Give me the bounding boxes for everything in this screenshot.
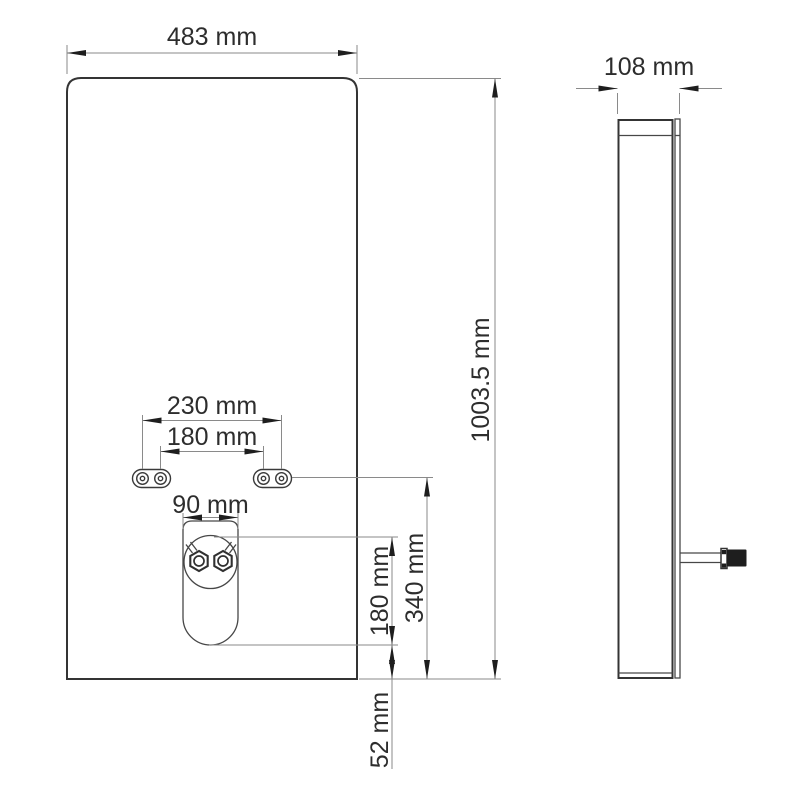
pipe-nut — [727, 550, 747, 567]
side-body-outline — [619, 120, 673, 678]
dim-holes-inner-label: 180 mm — [167, 423, 257, 451]
mounting-hole — [137, 473, 149, 485]
front-view — [67, 78, 357, 679]
dim-front-width-label: 483 mm — [167, 23, 257, 51]
dim-front-height-label: 1003.5 mm — [467, 317, 495, 442]
dim-holes-to-bottom: 340 mm — [292, 478, 433, 680]
side-view — [619, 119, 747, 678]
technical-drawing-canvas: 483 mm 1003.5 mm 108 mm 230 mm 180 mm — [0, 0, 800, 800]
slot-outline — [254, 470, 292, 488]
dim-holes-to-bottom-label: 340 mm — [401, 533, 429, 623]
mounting-hole-center — [140, 476, 144, 480]
extension-lines — [618, 93, 680, 114]
dim-side-depth-label: 108 mm — [604, 53, 694, 81]
pipe-lines — [680, 553, 721, 563]
back-plate — [675, 119, 680, 678]
mounting-hole — [276, 473, 288, 485]
dim-holes-outer-label: 230 mm — [167, 392, 257, 420]
dim-cutout-width: 90 mm — [172, 491, 248, 529]
flange-mark-top — [722, 550, 726, 554]
dim-cutout-bottom-gap: 52 mm — [366, 645, 394, 769]
mounting-hole-center — [279, 476, 283, 480]
installation-drawing: 483 mm 1003.5 mm 108 mm 230 mm 180 mm — [0, 0, 800, 800]
bolt-hole — [194, 556, 204, 566]
dim-cutout-bottom-gap-label: 52 mm — [366, 692, 394, 768]
dim-cutout-height-label: 180 mm — [366, 546, 394, 636]
hex-bolt-left — [190, 551, 207, 571]
mounting-slot-left — [133, 470, 171, 488]
mounting-slot-right — [254, 470, 292, 488]
dim-holes-inner: 180 mm — [161, 423, 264, 469]
mounting-hole — [155, 473, 167, 485]
cutout-outline — [183, 521, 238, 645]
dim-cutout-width-label: 90 mm — [172, 491, 248, 519]
water-connection — [680, 549, 747, 569]
slot-outline — [133, 470, 171, 488]
service-cutout — [183, 521, 238, 645]
bolt-hole — [218, 556, 228, 566]
mounting-hole-center — [158, 476, 162, 480]
hex-bolt-right — [214, 551, 231, 571]
supply-stem-left — [186, 542, 197, 553]
mounting-hole-center — [261, 476, 265, 480]
mounting-hole — [258, 473, 270, 485]
dim-side-depth: 108 mm — [576, 53, 722, 114]
flange-mark-bottom — [722, 564, 726, 568]
dim-front-width: 483 mm — [67, 23, 357, 74]
